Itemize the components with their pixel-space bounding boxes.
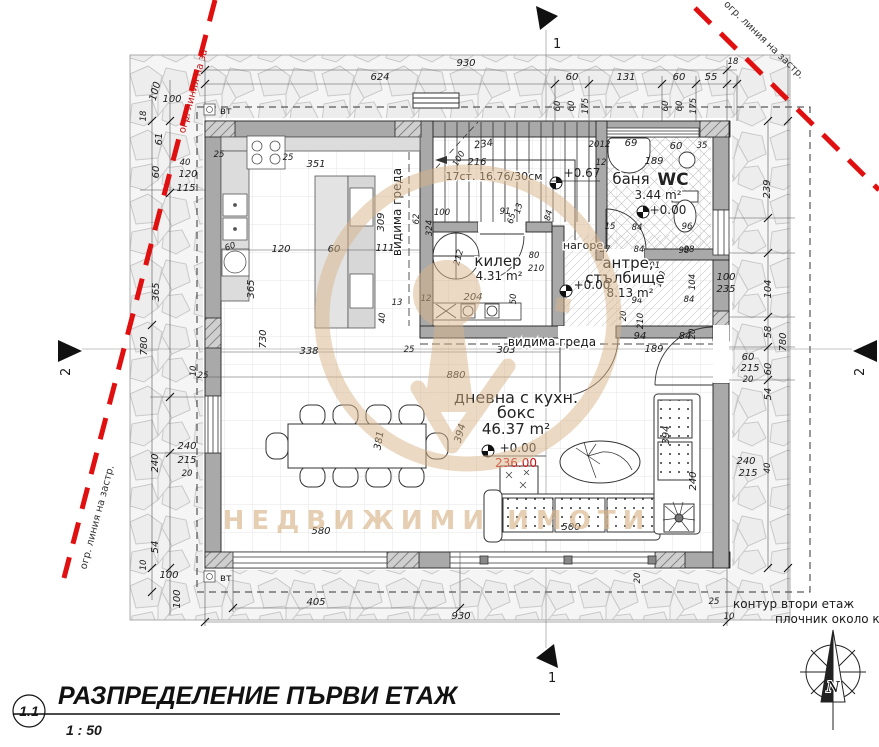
dim: 210	[636, 313, 646, 329]
dim: 98	[684, 245, 695, 255]
dim: 25	[198, 371, 209, 381]
dim: 20	[589, 140, 600, 150]
drawing-scale: 1 : 50	[66, 722, 102, 738]
dim: 104	[688, 274, 698, 290]
plan-drawing: 930 624 60 131 60 55 18 60 60 175 60 60 …	[0, 0, 879, 747]
pantry-area: 4.31 m²	[475, 269, 522, 283]
dim: 235	[716, 284, 735, 295]
level-marker-hall	[560, 285, 572, 297]
dim: 405	[306, 597, 325, 608]
dim: 730	[258, 329, 269, 348]
bath-wc: WC	[657, 170, 688, 190]
dim: 624	[370, 72, 389, 83]
dim: 338	[299, 346, 318, 357]
section-arrow-right	[853, 340, 877, 362]
dim: 60	[661, 101, 671, 112]
dim: 20	[688, 329, 698, 340]
dim: 60	[675, 101, 685, 112]
dim: 215	[740, 363, 759, 374]
bath-area: 3.44 m²	[634, 188, 681, 202]
bath-level: +0.00	[650, 203, 687, 217]
section-arrow-top	[536, 6, 558, 30]
section-label-top: 1	[553, 37, 561, 52]
section-arrow-left	[58, 340, 82, 362]
compass-rose: N	[800, 630, 866, 730]
stove	[247, 136, 285, 169]
corner-sink	[679, 152, 695, 168]
dim: 25	[404, 345, 415, 355]
dim: 60	[742, 352, 755, 363]
dim: 175	[581, 98, 591, 114]
dim: 189	[644, 156, 663, 167]
dim: 100	[172, 589, 183, 608]
dim: 84	[684, 295, 695, 305]
dim: 60	[566, 72, 579, 83]
dim: 100	[434, 208, 450, 218]
dim: 50	[509, 294, 519, 305]
dim: 96	[682, 222, 693, 232]
beam-label-horizontal: видима греда	[508, 335, 596, 349]
dim: 100	[159, 570, 178, 581]
dim: 780	[778, 332, 789, 351]
dim: 18	[728, 57, 739, 67]
dim: 930	[451, 611, 470, 622]
dim: 84	[632, 223, 643, 233]
dim: 60	[670, 141, 683, 152]
dim: 365	[151, 282, 162, 301]
dim: 215	[738, 468, 757, 479]
dim: 61	[154, 133, 165, 146]
drawing-number: 1.1	[19, 703, 39, 719]
stairs-level: +0.67	[564, 166, 601, 180]
level-marker-stairs	[550, 177, 562, 189]
bath-name: баня	[612, 170, 649, 188]
vt-symbol-bottom	[204, 571, 215, 582]
dim: 40	[763, 463, 773, 474]
dim: 25	[709, 597, 720, 607]
dim: 60	[567, 101, 577, 112]
dim: 15	[605, 222, 616, 232]
dim: 175	[689, 98, 699, 114]
title-block: 1.1 РАЗПРЕДЕЛЕНИЕ ПЪРВИ ЕТАЖ 1 : 50	[13, 682, 560, 738]
floor-plan-sheet: 930 624 60 131 60 55 18 60 60 175 60 60 …	[0, 0, 879, 747]
dim: 309	[376, 212, 387, 231]
dim: 60	[151, 166, 162, 179]
vt-bottom: вт	[220, 573, 232, 584]
dim: 20	[743, 375, 754, 385]
dim: 120	[178, 169, 197, 180]
dim: 365	[246, 279, 257, 298]
dim: 210	[528, 264, 544, 274]
corner-plant	[663, 502, 695, 532]
dim: 239	[762, 179, 773, 198]
level-marker-bath	[637, 206, 649, 218]
dim: 12	[600, 140, 611, 150]
pantry-name: килер	[474, 252, 521, 270]
second-floor-note: контур втори етаж	[733, 597, 854, 611]
dim: 240	[688, 471, 699, 490]
paving-note: плочник около къща	[775, 612, 879, 626]
dim: 324	[425, 220, 435, 236]
dim: 20	[182, 469, 193, 479]
dim: 100	[716, 272, 735, 283]
dim: 215	[177, 455, 196, 466]
pouf	[500, 466, 538, 496]
vt-top: вт	[220, 106, 232, 117]
dim: 25	[214, 150, 225, 160]
dim: 120	[271, 244, 290, 255]
dim: 55	[705, 72, 718, 83]
coffee-table	[560, 441, 640, 483]
dim: 115	[176, 183, 195, 194]
dim: 100	[162, 94, 181, 105]
dim: 351	[306, 159, 325, 170]
dim: 104	[763, 279, 774, 298]
dim: 189	[644, 344, 663, 355]
section-label-bottom: 1	[548, 671, 556, 686]
dim: 18	[139, 110, 149, 121]
dim: 240	[150, 453, 161, 472]
dim: 35	[697, 141, 708, 151]
dim: 13	[392, 298, 403, 308]
dim: 62	[412, 214, 422, 225]
dim: 40	[378, 313, 388, 324]
dim: 240	[177, 441, 196, 452]
vt-symbol-top	[204, 104, 215, 115]
dim: 58	[763, 326, 774, 339]
section-label-left: 2	[59, 368, 74, 376]
outdoor-bench	[413, 93, 459, 108]
dim: 20	[633, 573, 643, 584]
section-arrow-bottom	[536, 644, 558, 668]
dim: 25	[283, 153, 294, 163]
dim: 54	[763, 388, 774, 401]
section-label-right: 2	[853, 368, 868, 376]
regulation-label-bottom-left: огр. линия на застр.	[78, 464, 116, 571]
dim: 780	[139, 336, 150, 355]
dim: 60	[673, 72, 686, 83]
dim: 69	[625, 138, 638, 149]
dim: 40	[180, 158, 191, 168]
living-area: 46.37 m²	[482, 420, 550, 438]
dim: 930	[456, 58, 475, 69]
dim: 394	[661, 425, 672, 444]
dim: 60	[763, 363, 774, 376]
dim: 10	[724, 612, 735, 622]
dim: 54	[150, 541, 161, 554]
dim: 60	[553, 101, 563, 112]
dim: 80	[529, 251, 540, 261]
washer	[224, 251, 246, 273]
compass-north-label: N	[825, 678, 840, 696]
dim: 131	[616, 72, 635, 83]
watermark-text: НЕДВИЖИМИ ИМОТИ	[223, 506, 652, 536]
dim: 10	[139, 560, 149, 571]
drawing-title: РАЗПРЕДЕЛЕНИЕ ПЪРВИ ЕТАЖ	[58, 682, 459, 710]
dim: 240	[736, 456, 755, 467]
dim: 94	[634, 331, 647, 342]
